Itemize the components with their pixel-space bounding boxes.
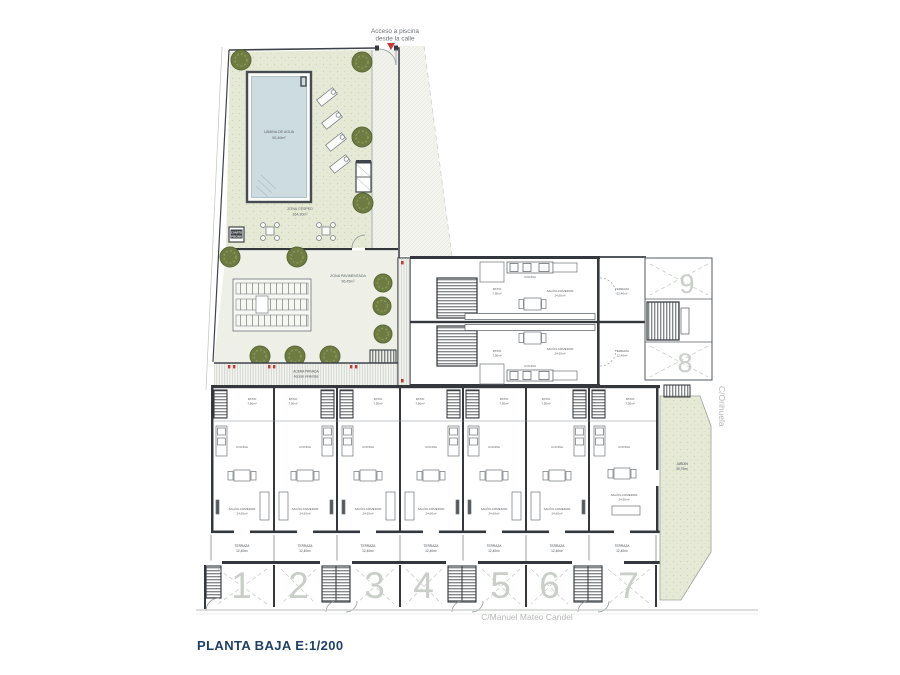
terraza-label-1a: TERRAZA xyxy=(235,544,251,548)
parking-number-1: 1 xyxy=(231,565,253,606)
patio-label-4a: PATIO xyxy=(416,397,425,401)
cocina-label-2: COCINA xyxy=(299,445,311,449)
garden-label-line1: JARDÍN xyxy=(676,462,688,466)
patio-label-6a: PATIO xyxy=(542,397,551,401)
patio-label-1b: 7,50m² xyxy=(247,402,256,406)
cocina-label-3: COCINA xyxy=(362,445,374,449)
parking-number-6: 6 xyxy=(539,565,561,606)
patio-label-3b: 7,50m² xyxy=(373,402,382,406)
walkway-stairs xyxy=(370,350,396,363)
terraza-label-5b: 12,40m² xyxy=(488,549,500,553)
parking-number-7: 7 xyxy=(618,565,640,606)
cocina-label-1: COCINA xyxy=(236,445,248,449)
garden-zone: JARDÍN 39,75m² xyxy=(660,385,711,600)
walkway-label-line2: Acceso viviendas xyxy=(294,375,319,379)
wall-opening xyxy=(352,248,365,251)
patio-label-3a: PATIO xyxy=(374,397,383,401)
salon-label-2b: 24,60m² xyxy=(299,512,310,516)
salon-label-6b: 24,60m² xyxy=(551,512,562,516)
upper-apartment-block: PATIO 7,50m² PATIO 7,50m² COCINA COCINA … xyxy=(398,256,646,387)
parking-number-9: 9 xyxy=(679,269,694,299)
access-text-line2: desde la calle xyxy=(375,36,415,43)
terraza-label-4a: TERRAZA xyxy=(424,544,440,548)
salon-label-3a: SALÓN-COMEDOR xyxy=(355,506,383,511)
lawn-label-line2: 164,30m² xyxy=(292,213,308,217)
garden-label-line2: 39,75m² xyxy=(676,467,688,471)
pool-equipment-room: CUARTO PISCINA xyxy=(229,227,244,242)
upper-patio-label1b: 7,50m² xyxy=(492,292,501,296)
access-arrow-icon xyxy=(387,43,395,50)
terraza-label-3b: 12,40m² xyxy=(362,549,374,553)
terraza-label-7a: TERRAZA xyxy=(615,544,631,548)
floor-plan-canvas: Acceso a piscina desde la calle LÁMINA D… xyxy=(0,0,900,675)
upper-terraza-label1b: 12,40m² xyxy=(616,292,627,296)
floor-plan-page: Acceso a piscina desde la calle LÁMINA D… xyxy=(0,0,900,675)
upper-cocina-label1: COCINA xyxy=(524,275,536,279)
upper-patio-label2a: PATIO xyxy=(493,349,502,353)
patio-label-2b: 7,50m² xyxy=(288,402,297,406)
upper-salon-label1a: SALÓN-COMEDOR xyxy=(547,288,575,293)
upper-terraza-label1a: TERRAZA xyxy=(615,287,629,291)
terraza-label-7b: 12,40m² xyxy=(616,549,628,553)
salon-label-4a: SALÓN-COMEDOR xyxy=(418,506,446,511)
pool-room-label2: PISCINA xyxy=(231,235,242,239)
street-label-bottom: C/Manuel Mateo Candel xyxy=(481,612,573,622)
parking-number-4: 4 xyxy=(413,565,435,606)
parking-number-5: 5 xyxy=(490,565,512,606)
upper-salon-label1b: 24,60m² xyxy=(554,294,565,298)
salon-label-1a: SALÓN-COMEDOR xyxy=(229,506,257,511)
paved-label-line2: 96,45m² xyxy=(341,280,355,284)
swimming-pool: LÁMINA DE AGUA 50,40m² xyxy=(247,72,311,202)
cocina-label-7: COCINA xyxy=(618,445,630,449)
terraza-label-4b: 12,40m² xyxy=(425,549,437,553)
terraza-label-2b: 12,40m² xyxy=(299,549,311,553)
terraza-label-1b: 12,40m² xyxy=(236,549,248,553)
patio-label-7a: PATIO xyxy=(626,397,635,401)
terraza-label-3a: TERRAZA xyxy=(361,544,377,548)
salon-label-7a: SALÓN-COMEDOR xyxy=(611,492,639,497)
pool-cabinet xyxy=(356,160,371,192)
patio-label-5a: PATIO xyxy=(500,397,509,401)
patio-label-4b: 7,50m² xyxy=(415,402,424,406)
salon-label-6a: SALÓN-COMEDOR xyxy=(544,506,572,511)
salon-label-1b: 24,60m² xyxy=(236,512,247,516)
upper-patio-label2b: 7,50m² xyxy=(492,354,501,358)
patio-label-6b: 7,50m² xyxy=(541,402,550,406)
patio-label-5b: 7,50m² xyxy=(499,402,508,406)
salon-label-4b: 24,60m² xyxy=(425,512,436,516)
street-label-right: C/Orihuela xyxy=(717,386,727,427)
salon-label-3b: 24,60m² xyxy=(362,512,373,516)
paved-label-line1: ZONA PAVIMENTADA xyxy=(330,274,366,278)
patio-label-7b: 7,50m² xyxy=(625,402,634,406)
upper-cocina-label2: COCINA xyxy=(524,364,536,368)
pool-room-label1: CUARTO xyxy=(231,231,242,235)
parking-row: 1 2 3 4 5 6 7 xyxy=(204,565,657,612)
pool-label-line2: 50,40m² xyxy=(272,136,286,140)
salon-label-2a: SALÓN-COMEDOR xyxy=(292,506,320,511)
salon-label-7b: 24,60m² xyxy=(618,498,629,502)
terrace-strip: TERRAZA 12,40m² TERRAZA 12,40m² TERRAZA … xyxy=(204,535,660,565)
walkway-band: ACERA PRIVADA Acceso viviendas xyxy=(214,363,398,385)
upper-terraza-label2b: 12,40m² xyxy=(616,354,627,358)
patio-label-1a: PATIO xyxy=(248,397,257,401)
parking-8-9: 9 8 xyxy=(645,258,712,380)
parking-number-3: 3 xyxy=(364,565,386,606)
townhouse-row: PATIO 7,50m² PATIO 7,50m² PATIO 7,50m² P… xyxy=(211,385,660,534)
salon-label-5a: SALÓN-COMEDOR xyxy=(481,506,509,511)
cocina-label-4: COCINA xyxy=(425,445,437,449)
upper-terraza-label2a: TERRAZA xyxy=(615,349,629,353)
terraza-label-2a: TERRAZA xyxy=(298,544,314,548)
terraza-label-6b: 12,40m² xyxy=(551,549,563,553)
patio-label-2a: PATIO xyxy=(289,397,298,401)
plan-title: PLANTA BAJA E:1/200 xyxy=(197,638,344,653)
cocina-label-5: COCINA xyxy=(488,445,500,449)
dividing-wall xyxy=(226,248,398,250)
upper-salon-label2a: SALÓN-COMEDOR xyxy=(547,346,575,351)
lawn-label-line1: ZONA CÉSPED xyxy=(287,206,313,211)
parking-number-8: 8 xyxy=(677,348,692,378)
salon-label-5b: 24,60m² xyxy=(488,512,499,516)
upper-patio-label1a: PATIO xyxy=(493,287,502,291)
upper-salon-label2b: 24,60m² xyxy=(554,352,565,356)
parking-number-2: 2 xyxy=(288,565,310,606)
access-text-line1: Acceso a piscina xyxy=(371,28,419,35)
street-wedge xyxy=(399,46,452,256)
cocina-label-6: COCINA xyxy=(551,445,563,449)
walkway-label-line1: ACERA PRIVADA xyxy=(293,370,319,374)
pool-label-line1: LÁMINA DE AGUA xyxy=(264,130,295,134)
pergola xyxy=(233,279,311,331)
terraza-label-6a: TERRAZA xyxy=(550,544,566,548)
terraza-label-5a: TERRAZA xyxy=(487,544,503,548)
